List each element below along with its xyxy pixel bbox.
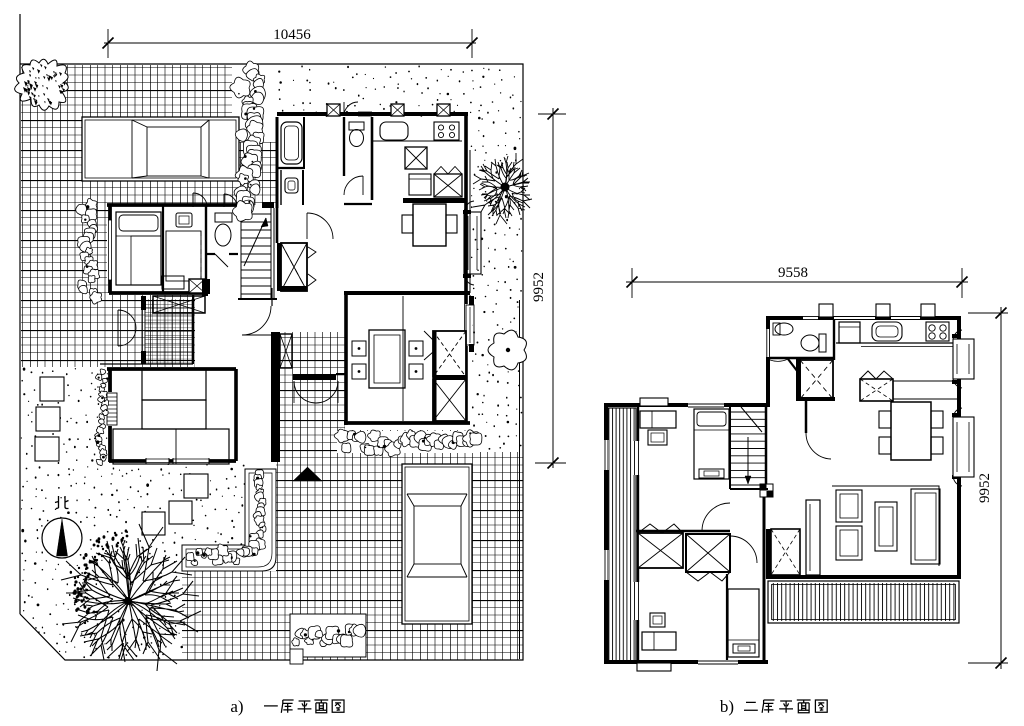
svg-text:9952: 9952 <box>531 272 547 302</box>
svg-text:a): a) <box>230 697 243 716</box>
svg-text:b): b) <box>720 697 734 716</box>
svg-text:9558: 9558 <box>778 265 808 281</box>
svg-text:9952: 9952 <box>977 473 993 503</box>
svg-text:10456: 10456 <box>273 27 311 43</box>
